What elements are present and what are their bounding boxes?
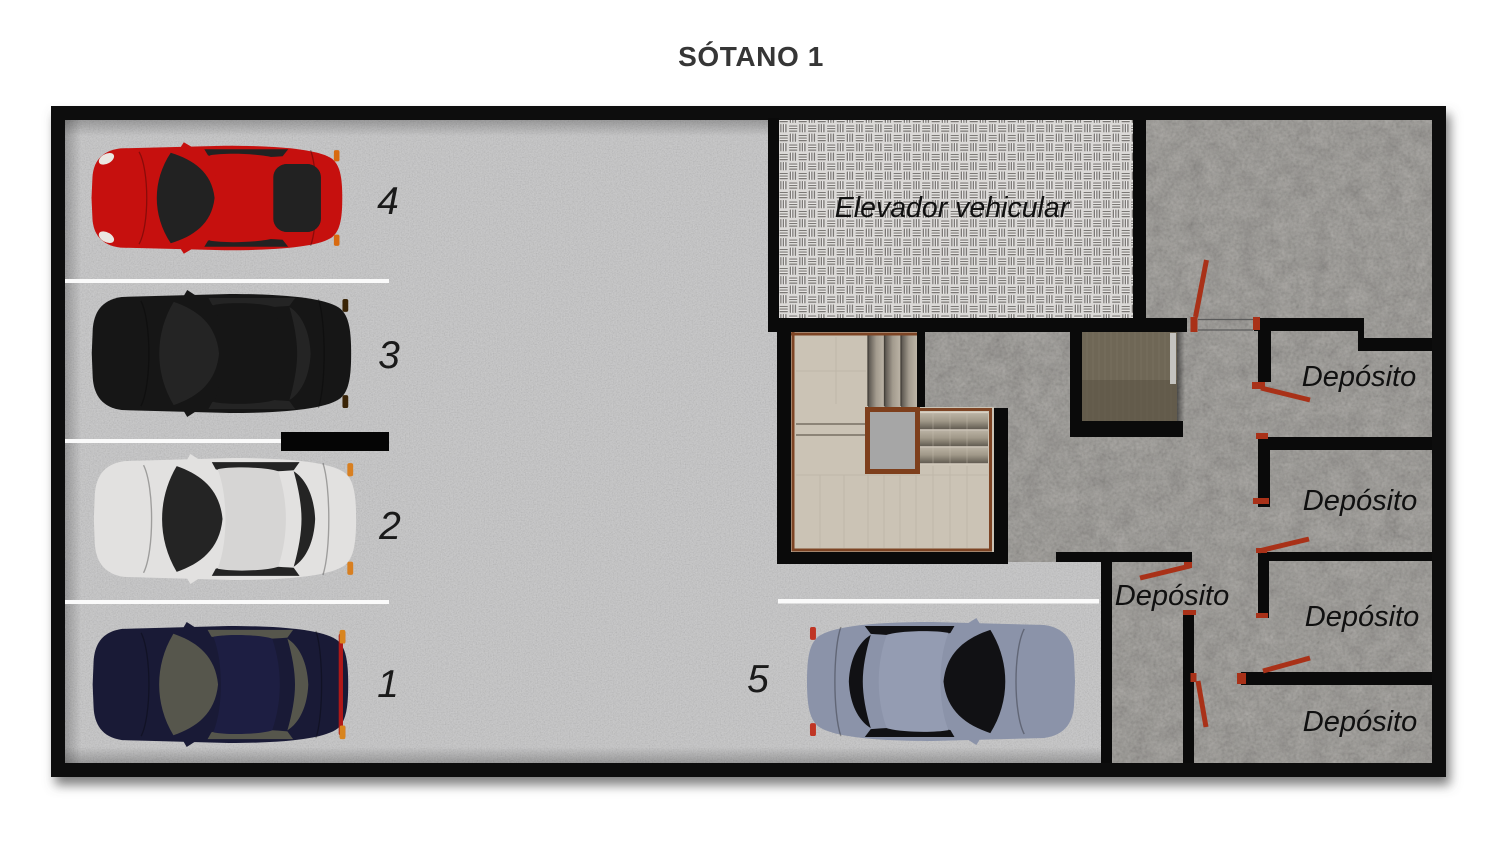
svg-text:Depósito: Depósito xyxy=(1303,485,1417,517)
svg-text:4: 4 xyxy=(377,180,399,223)
svg-text:Depósito: Depósito xyxy=(1115,580,1229,612)
svg-text:3: 3 xyxy=(378,334,400,377)
svg-text:SÓTANO 1: SÓTANO 1 xyxy=(678,41,824,72)
svg-text:Depósito: Depósito xyxy=(1302,361,1416,393)
svg-text:5: 5 xyxy=(747,658,769,701)
svg-text:Elevador vehicular: Elevador vehicular xyxy=(835,192,1071,224)
svg-text:Depósito: Depósito xyxy=(1305,601,1419,633)
svg-text:1: 1 xyxy=(377,663,399,706)
svg-text:Depósito: Depósito xyxy=(1303,706,1417,738)
svg-text:2: 2 xyxy=(378,505,401,548)
